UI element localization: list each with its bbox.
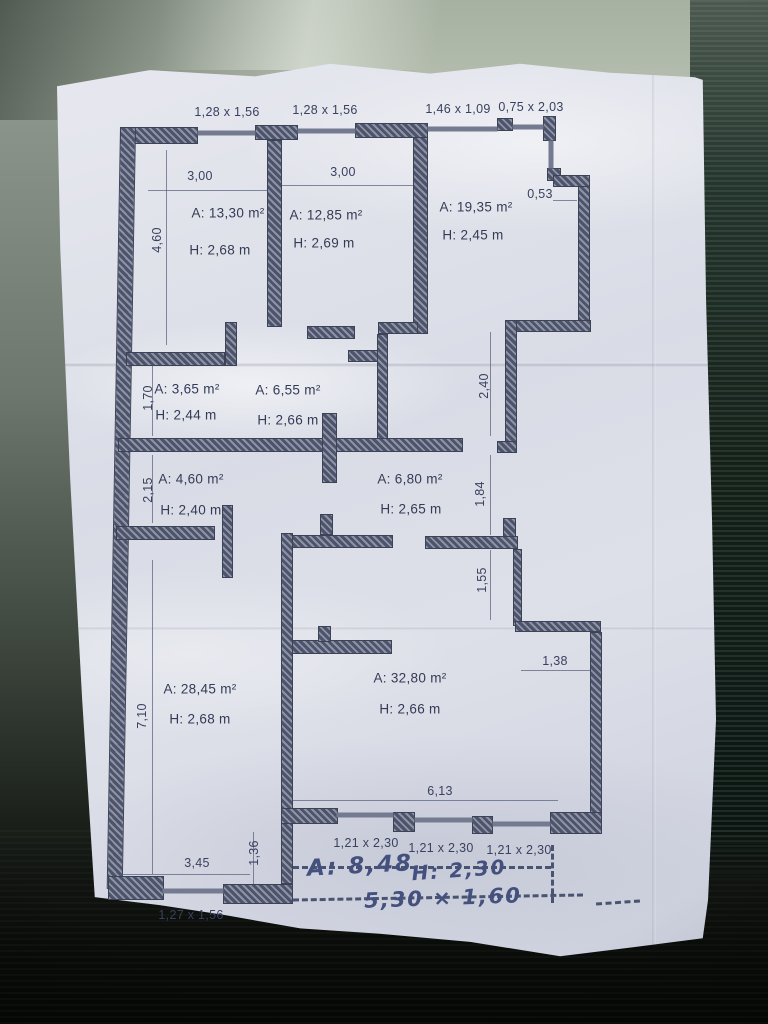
dimension-label: 4,60 [150,227,164,253]
window-size-label: 1,21 x 2,30 [408,841,473,855]
room-ceiling-label: H: 2,65 m [380,502,441,517]
dimension-line [166,150,167,345]
wall-left-exterior [107,127,136,889]
room-area-label: A: 28,45 m² [163,682,236,697]
room-area-label: A: 6,80 m² [377,472,442,487]
dimension-line [490,550,491,620]
wall-segment [225,322,237,366]
wall-hallway [118,438,463,452]
dimension-label: 1,70 [141,385,155,411]
window-line [513,125,543,129]
wall-segment [377,334,388,447]
wall-segment [223,884,293,904]
wall-segment [578,186,590,332]
room-ceiling-label: H: 2,44 m [155,408,216,423]
dimension-label: 3,00 [187,169,213,183]
dimension-label: 1,36 [247,840,261,866]
wall-segment [543,116,556,141]
wall-segment [222,505,233,578]
room-area-label: A: 3,65 m² [154,382,219,397]
window-line [337,813,393,817]
room-ceiling-label: H: 2,69 m [293,236,354,251]
room-area-label: A: 6,55 m² [255,383,320,398]
wall-segment [283,535,393,548]
wall-segment [413,137,428,334]
dimension-line [293,800,558,801]
window-size-label: 1,28 x 1,56 [194,105,259,119]
dimension-label: 0,53 [527,187,553,201]
window-size-label: 1,46 x 1,09 [425,102,490,116]
wall-segment [281,533,293,884]
wall-pier [472,816,493,834]
handwritten-size-note: 5,30 × 1,60 [364,883,523,912]
dimension-label: 1,55 [475,567,489,593]
window-size-label: 1,27 x 1,56 [158,908,223,922]
wall-segment [513,549,522,626]
wall-segment [507,320,591,332]
window-line [493,822,550,826]
room-ceiling-label: H: 2,45 m [442,228,503,243]
wall-segment [355,123,428,138]
room-ceiling-label: H: 2,40 m [160,503,221,518]
dimension-line [553,200,577,201]
dimension-line [122,874,250,875]
wall-right-exterior [590,632,602,828]
window-line [298,129,355,133]
balcony-dashed-line [596,899,640,905]
window-size-label: 1,28 x 1,56 [292,103,357,117]
dimension-label: 3,00 [330,165,356,179]
room-area-label: A: 32,80 m² [373,671,446,686]
wall-segment [322,413,337,483]
window-size-label: 1,21 x 2,30 [333,836,398,850]
window-line [198,131,255,135]
dimension-label: 7,10 [135,703,149,729]
wall-segment [116,526,215,540]
handwritten-area-note: A: 8,48 [306,850,413,882]
window-line [163,889,223,893]
wall-segment [378,322,418,334]
dimension-label: 1,84 [473,481,487,507]
window-line [549,141,553,168]
wall-segment [497,441,517,453]
wall-segment [307,326,355,339]
dimension-label: 2,40 [477,373,491,399]
dimension-line [152,560,153,874]
room-area-label: A: 19,35 m² [439,200,512,215]
room-ceiling-label: H: 2,68 m [189,243,250,258]
wall-segment [108,876,164,900]
wall-segment [292,640,392,654]
wall-segment [126,352,225,366]
wall-segment [320,514,333,535]
room-area-label: A: 12,85 m² [289,208,362,223]
wall-segment [348,350,380,362]
dimension-label: 3,45 [184,856,210,870]
wall-pier [393,812,415,832]
dimension-label: 2,15 [141,477,155,503]
wall-segment [255,125,298,140]
wall-segment [267,140,282,327]
wall-segment [497,118,513,131]
wall-segment [505,320,517,453]
room-area-label: A: 4,60 m² [158,472,223,487]
dimension-line [521,670,590,671]
wall-segment [515,621,601,632]
wall-segment [318,626,331,642]
room-area-label: A: 13,30 m² [191,206,264,221]
room-ceiling-label: H: 2,66 m [257,413,318,428]
dimension-label: 6,13 [427,784,453,798]
window-line [428,127,497,131]
dimension-line [490,455,491,535]
floor-plan: 1,28 x 1,56 1,28 x 1,56 1,46 x 1,09 0,75… [0,0,768,1024]
wall-segment [550,812,602,834]
handwritten-height-note: H: 2,30 [411,855,507,886]
dimension-line [282,185,413,186]
window-size-label: 0,75 x 2,03 [498,100,563,114]
window-line [415,818,472,822]
wall-segment [425,536,518,549]
dimension-label: 1,38 [542,654,568,668]
wall-segment [281,808,338,824]
room-ceiling-label: H: 2,66 m [379,702,440,717]
room-ceiling-label: H: 2,68 m [169,712,230,727]
